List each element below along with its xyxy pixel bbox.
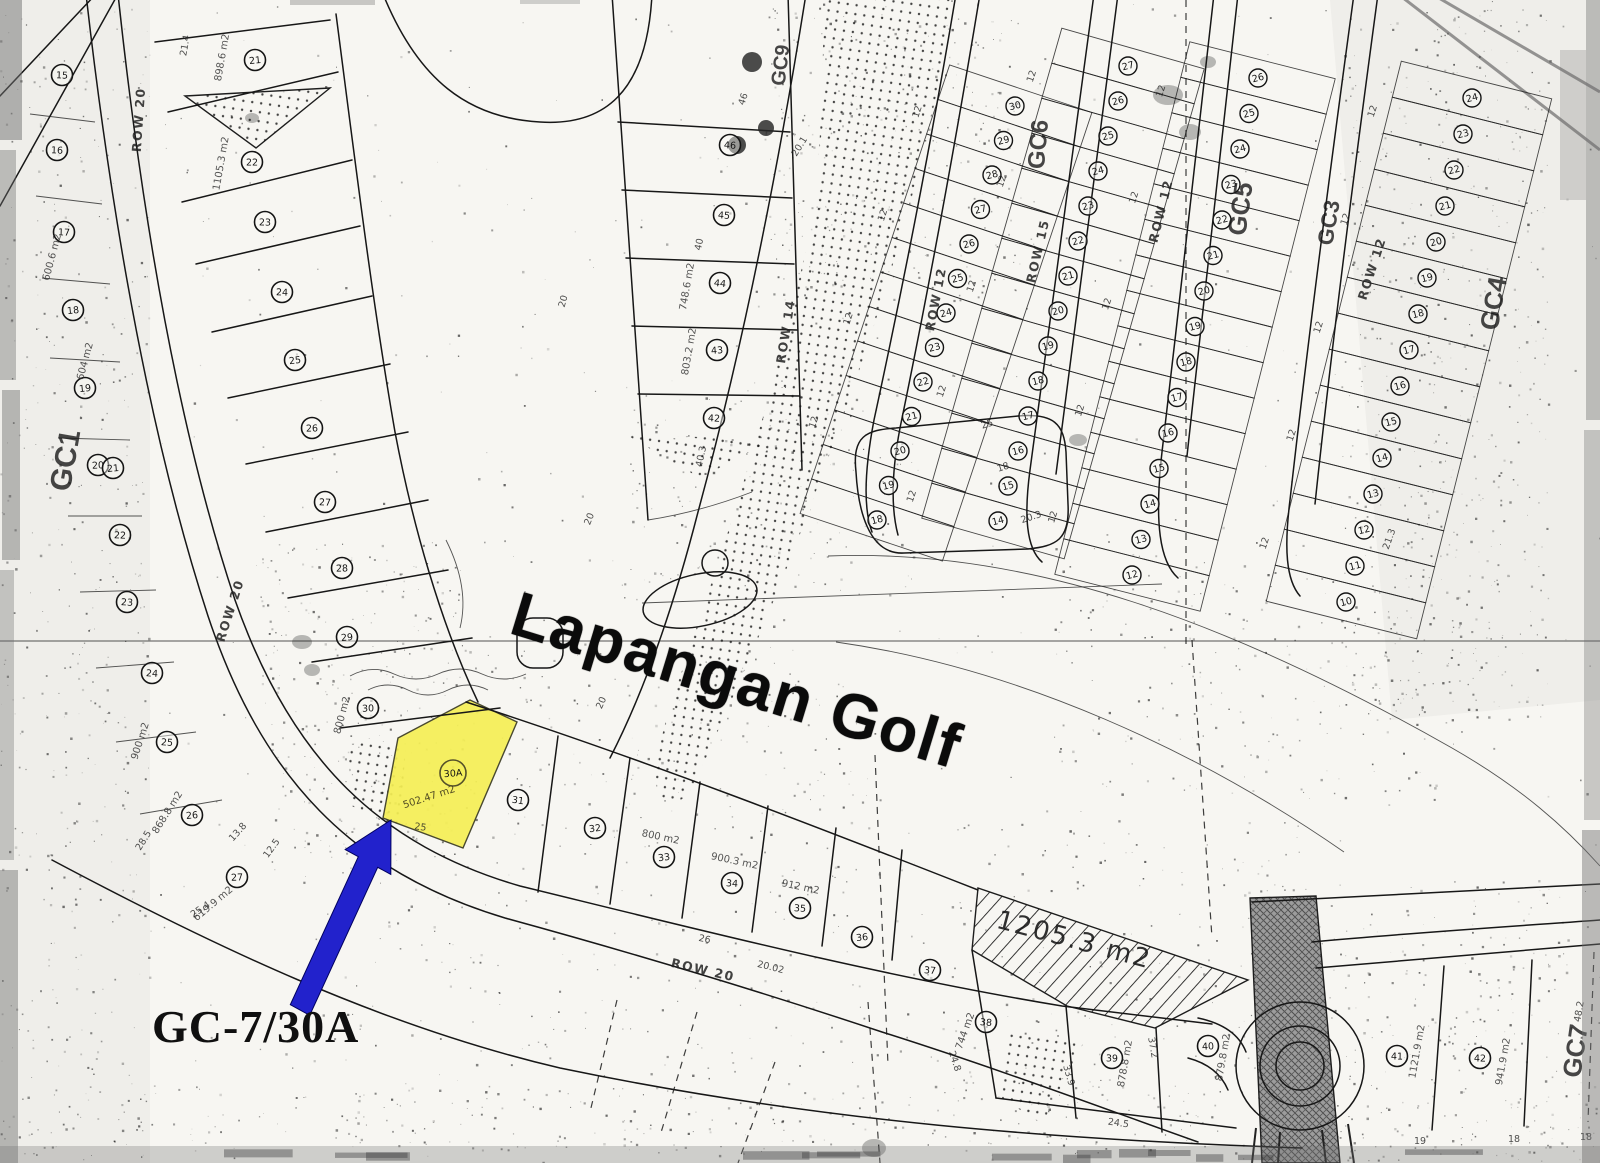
scan-speck	[1331, 642, 1333, 644]
scan-speck	[699, 567, 700, 568]
scan-speck	[783, 112, 784, 113]
scan-speck	[672, 381, 673, 382]
scan-speck	[991, 22, 992, 23]
scan-speck	[434, 931, 435, 932]
scan-speck	[798, 212, 799, 213]
scan-speck	[830, 465, 831, 466]
scan-speck	[1371, 328, 1373, 330]
scan-speck	[1453, 744, 1454, 745]
scan-speck	[1092, 680, 1093, 681]
scan-speck	[1546, 20, 1547, 21]
scan-speck	[1468, 684, 1469, 685]
scan-speck	[944, 1092, 945, 1093]
scan-speck	[80, 1054, 82, 1056]
lot-number: 30	[362, 703, 374, 714]
scan-speck	[101, 1041, 103, 1043]
scan-speck	[499, 992, 500, 993]
scan-speck	[498, 892, 500, 894]
scan-speck	[273, 652, 274, 653]
scan-speck	[546, 1046, 548, 1048]
scan-speck	[305, 841, 306, 842]
scan-speck	[553, 1029, 554, 1030]
scan-speck	[798, 203, 799, 204]
scan-speck	[6, 562, 8, 564]
scan-speck	[1539, 977, 1541, 979]
scan-speck	[982, 292, 984, 294]
scan-speck	[639, 483, 641, 485]
scan-speck	[382, 545, 384, 547]
scan-speck	[559, 1136, 561, 1138]
scan-speck	[79, 654, 80, 655]
scan-speck	[39, 57, 40, 58]
scan-speck	[309, 789, 311, 791]
scan-speck	[1426, 1136, 1428, 1138]
scan-speck	[1498, 893, 1500, 895]
scan-speck	[614, 837, 615, 838]
scan-speck	[1385, 137, 1387, 139]
scan-speck	[40, 125, 42, 127]
scan-speck	[1451, 657, 1453, 659]
scan-speck	[843, 772, 845, 774]
scan-speck	[450, 50, 452, 52]
scan-speck	[1221, 693, 1222, 694]
scan-speck	[318, 616, 320, 618]
scan-speck	[1529, 1142, 1530, 1143]
scan-speck	[740, 1103, 742, 1105]
scan-speck	[128, 406, 129, 407]
scan-speck	[1176, 714, 1179, 717]
scan-speck	[1480, 500, 1481, 501]
scan-speck	[780, 752, 782, 754]
scan-speck	[651, 508, 652, 509]
scan-speck	[272, 861, 273, 862]
scan-speck	[36, 367, 37, 368]
scan-speck	[1414, 532, 1416, 534]
scan-speck	[73, 1128, 75, 1130]
scan-speck	[1441, 375, 1443, 377]
scan-speck	[1421, 354, 1423, 356]
scan-speck	[271, 560, 273, 562]
scan-speck	[1080, 610, 1082, 612]
scan-speck	[1148, 1094, 1150, 1096]
scan-speck	[1200, 672, 1202, 674]
scan-speck	[412, 836, 414, 838]
scan-speck	[449, 1141, 450, 1142]
scan-speck	[492, 837, 494, 839]
scan-speck	[487, 452, 488, 453]
map-line	[288, 570, 448, 598]
scan-speck	[773, 1119, 775, 1121]
scan-speck	[1366, 453, 1368, 455]
scan-speck	[593, 954, 595, 956]
scan-speck	[969, 275, 971, 277]
scan-speck	[995, 245, 996, 246]
scan-speck	[142, 482, 143, 483]
scan-speck	[1428, 342, 1430, 344]
scan-speck	[648, 845, 650, 847]
scan-speck	[43, 899, 44, 900]
scan-speck	[1143, 130, 1144, 131]
scan-speck	[626, 807, 628, 809]
scan-speck	[1334, 970, 1335, 971]
scan-speck	[901, 869, 903, 871]
scan-speck	[380, 883, 381, 884]
scan-speck	[1055, 629, 1057, 631]
scan-speck	[1499, 988, 1500, 989]
scan-speck	[698, 567, 700, 569]
scan-speck	[626, 862, 628, 864]
scan-speck	[78, 273, 80, 275]
scan-speck	[56, 1002, 58, 1004]
scan-speck	[837, 866, 839, 868]
scan-speck	[1171, 1020, 1172, 1021]
scan-speck	[1456, 549, 1458, 551]
scan-speck	[1499, 706, 1500, 707]
scan-speck	[1361, 386, 1362, 387]
scan-speck	[113, 327, 115, 329]
scan-speck	[1486, 135, 1488, 137]
scan-speck	[1456, 1017, 1457, 1018]
scan-speck	[1008, 846, 1010, 848]
scan-speck	[65, 767, 67, 769]
scan-speck	[1420, 890, 1422, 892]
scan-speck	[630, 1028, 631, 1029]
scan-speck	[1128, 833, 1129, 834]
scan-speck	[1474, 901, 1475, 902]
scan-speck	[1018, 1123, 1019, 1124]
scan-speck	[1174, 15, 1176, 17]
scan-speck	[326, 694, 327, 695]
scan-speck	[522, 326, 524, 328]
scan-speck	[1011, 777, 1012, 778]
scan-speck	[143, 75, 144, 76]
scan-speck	[865, 526, 866, 527]
scan-speck	[335, 1137, 337, 1139]
scan-speck	[688, 1113, 690, 1115]
scan-speck	[922, 299, 923, 300]
scan-speck	[1196, 566, 1198, 568]
scan-speck	[1093, 99, 1095, 101]
scan-speck	[1432, 1096, 1434, 1098]
scan-speck	[634, 793, 636, 795]
scan-speck	[1093, 731, 1094, 732]
scan-speck	[557, 1141, 558, 1142]
scan-speck	[1547, 165, 1548, 166]
scan-speck	[352, 619, 353, 620]
scan-speck	[1503, 944, 1505, 946]
scan-speck	[236, 419, 238, 421]
scan-speck	[1215, 652, 1216, 653]
scan-speck	[439, 1074, 440, 1075]
scan-speck	[1524, 551, 1526, 553]
scan-speck	[1297, 837, 1298, 838]
scan-speck	[1537, 705, 1538, 706]
scan-speck	[223, 714, 225, 716]
scan-speck	[1416, 692, 1417, 693]
scan-speck	[1201, 581, 1203, 583]
scan-speck	[647, 1031, 648, 1032]
scan-speck	[400, 715, 402, 717]
scan-speck	[1453, 470, 1454, 471]
scan-speck	[24, 448, 25, 449]
scan-speck	[750, 1038, 751, 1039]
lot-number: 44	[713, 278, 726, 290]
scan-speck	[522, 1048, 523, 1049]
scan-speck	[1418, 1105, 1420, 1107]
scan-speck	[936, 142, 937, 143]
scan-speck	[295, 711, 296, 712]
scan-speck	[122, 1063, 124, 1065]
scan-speck	[455, 567, 457, 569]
scan-speck	[842, 1115, 844, 1117]
scan-speck	[1306, 578, 1308, 580]
scan-speck	[804, 791, 806, 793]
scan-speck	[1476, 384, 1478, 386]
scan-speck	[80, 12, 82, 14]
scan-speck	[127, 792, 129, 794]
scan-speck	[140, 1099, 142, 1101]
scan-speck	[15, 846, 17, 849]
scan-speck	[1442, 142, 1443, 143]
scan-speck	[142, 493, 144, 495]
lot-number: 26	[306, 423, 318, 434]
scan-speck	[624, 778, 625, 779]
scan-speck	[720, 788, 721, 789]
scan-speck	[320, 678, 322, 680]
scan-speck	[900, 1050, 902, 1052]
scan-speck	[144, 276, 146, 278]
scan-speck	[441, 603, 443, 605]
scan-speck	[1106, 786, 1107, 787]
scan-speck	[71, 911, 73, 913]
boundary-dashed-line	[868, 1002, 880, 1163]
scan-speck	[564, 784, 566, 786]
scan-speck	[397, 922, 399, 924]
scan-speck	[1391, 343, 1393, 345]
scan-speck	[1245, 745, 1246, 746]
scan-speck	[291, 211, 292, 212]
scan-speck	[1476, 1036, 1477, 1037]
scan-speck	[1054, 737, 1055, 738]
scan-speck	[646, 395, 648, 397]
scan-speck	[77, 1114, 79, 1116]
scan-speck	[288, 756, 290, 758]
scan-speck	[441, 392, 442, 393]
scan-speck	[526, 699, 528, 701]
scan-speck	[666, 243, 668, 245]
scan-speck	[1537, 669, 1539, 671]
scan-speck	[65, 845, 67, 847]
scan-speck	[1474, 396, 1475, 397]
scan-speck	[256, 565, 257, 566]
scan-speck	[1273, 505, 1275, 507]
scan-speck	[1442, 361, 1443, 362]
scan-speck	[308, 802, 310, 804]
scan-speck	[1163, 1038, 1164, 1039]
scan-speck	[1482, 946, 1484, 948]
scan-speck	[148, 957, 150, 959]
scan-speck	[33, 1040, 34, 1041]
scan-speck	[449, 972, 450, 973]
scan-speck	[1423, 569, 1425, 571]
scan-speck	[139, 910, 141, 912]
scan-speck	[1518, 256, 1520, 258]
scan-speck	[982, 280, 983, 281]
scan-speck	[1143, 878, 1145, 880]
scan-speck	[957, 829, 958, 830]
scan-speck	[72, 653, 74, 655]
scan-speck	[1438, 124, 1440, 126]
scan-speck	[1437, 356, 1439, 358]
scan-speck	[1517, 422, 1518, 423]
scan-speck	[819, 809, 821, 811]
scan-speck	[46, 715, 47, 716]
dimension-label: 12	[1100, 297, 1114, 312]
scan-speck	[1533, 1107, 1535, 1109]
scan-speck	[993, 22, 994, 23]
scan-speck	[178, 1089, 180, 1091]
scan-speck	[1352, 264, 1354, 266]
scan-speck	[782, 1141, 783, 1142]
scan-speck	[1170, 1124, 1172, 1126]
scan-speck	[1148, 575, 1150, 577]
scan-speck	[1272, 733, 1274, 735]
scan-speck	[906, 1037, 908, 1039]
scan-speck	[1543, 338, 1544, 339]
scan-speck	[1449, 343, 1451, 345]
scan-speck	[693, 1131, 694, 1132]
scan-speck	[727, 718, 729, 720]
scan-speck	[641, 226, 643, 228]
scan-speck	[1046, 810, 1048, 812]
scan-speck	[889, 594, 891, 596]
scan-speck	[1381, 1112, 1382, 1113]
scan-speck	[110, 563, 111, 564]
scan-speck	[330, 851, 332, 853]
scan-speck	[47, 855, 49, 857]
scan-speck	[1398, 699, 1399, 700]
scan-speck	[1243, 628, 1245, 630]
scan-speck	[1242, 722, 1244, 724]
scan-speck	[817, 1002, 818, 1003]
scan-speck	[550, 473, 551, 474]
scan-speck	[1526, 147, 1527, 148]
scan-speck	[49, 341, 50, 342]
scan-speck	[206, 268, 208, 270]
scan-speck	[415, 889, 417, 891]
map-line	[1252, 884, 1600, 902]
scan-speck	[640, 817, 641, 818]
scan-speck	[65, 712, 68, 715]
scan-speck	[307, 732, 308, 733]
scan-speck	[88, 32, 89, 33]
scan-speck	[1424, 738, 1426, 740]
scan-speck	[137, 501, 139, 503]
scan-speck	[331, 857, 332, 858]
scan-speck	[138, 1125, 140, 1127]
scan-speck	[614, 933, 615, 934]
lot-number: 18	[67, 305, 80, 317]
dimension-label: 20.3	[1019, 509, 1043, 526]
lot-number: 34	[726, 878, 739, 890]
scan-speck	[690, 1096, 692, 1098]
lot-number: 27	[319, 497, 331, 508]
scan-speck	[106, 664, 108, 666]
scan-speck	[522, 271, 525, 274]
scan-speck	[1181, 884, 1183, 886]
scan-speck	[1567, 939, 1569, 941]
scan-speck	[392, 1131, 394, 1133]
scan-speck	[275, 632, 276, 633]
scan-speck	[868, 827, 870, 829]
scan-speck	[673, 1144, 675, 1146]
scan-speck	[1436, 511, 1438, 513]
scan-speck	[332, 684, 333, 685]
scan-speck	[1165, 1134, 1166, 1135]
scan-speck	[1477, 421, 1479, 423]
scan-speck	[587, 705, 589, 707]
scan-speck	[950, 244, 952, 246]
scan-speck	[1196, 1115, 1197, 1116]
scan-speck	[1348, 255, 1349, 256]
scan-speck	[965, 1090, 967, 1092]
scan-speck	[1558, 955, 1561, 958]
scan-speck	[1471, 249, 1473, 251]
scan-speck	[1544, 207, 1545, 208]
scan-speck	[1440, 357, 1442, 359]
scan-speck	[786, 135, 788, 137]
scan-speck	[288, 611, 289, 612]
scan-speck	[1415, 689, 1417, 691]
scan-speck	[952, 375, 954, 377]
area-label: 744 m2	[954, 1011, 977, 1051]
scan-speck	[896, 920, 898, 922]
scan-speck	[682, 929, 685, 932]
lot-number: 19	[79, 383, 92, 395]
scan-speck	[789, 229, 790, 230]
scan-speck	[718, 158, 719, 159]
scan-speck	[1531, 212, 1532, 213]
scan-speck	[676, 542, 678, 544]
scan-speck	[1190, 1125, 1191, 1126]
scan-speck	[1399, 448, 1401, 450]
scan-speck	[1548, 964, 1549, 965]
scan-speck	[1313, 222, 1314, 223]
scan-speck	[126, 96, 128, 98]
lot-number: 22	[246, 158, 258, 169]
scan-speck	[907, 1013, 909, 1015]
scan-speck	[1518, 901, 1520, 903]
scan-speck	[789, 168, 791, 170]
scan-speck	[1511, 999, 1512, 1000]
scan-speck	[1098, 718, 1100, 720]
scan-speck	[1522, 653, 1523, 654]
scan-speck	[678, 496, 680, 498]
scan-speck	[1066, 1117, 1067, 1118]
scan-speck	[1457, 158, 1459, 160]
road-label: ROW 20	[670, 955, 737, 984]
scan-speck	[1395, 643, 1396, 644]
scan-speck	[709, 57, 711, 59]
scan-speck	[1252, 790, 1254, 792]
scan-speck	[1189, 638, 1191, 640]
scan-speck	[585, 1028, 586, 1029]
scan-speck	[960, 907, 962, 909]
scan-speck	[62, 336, 64, 338]
scan-speck	[1423, 984, 1425, 986]
scan-speck	[40, 123, 42, 125]
scan-speck	[781, 118, 783, 120]
